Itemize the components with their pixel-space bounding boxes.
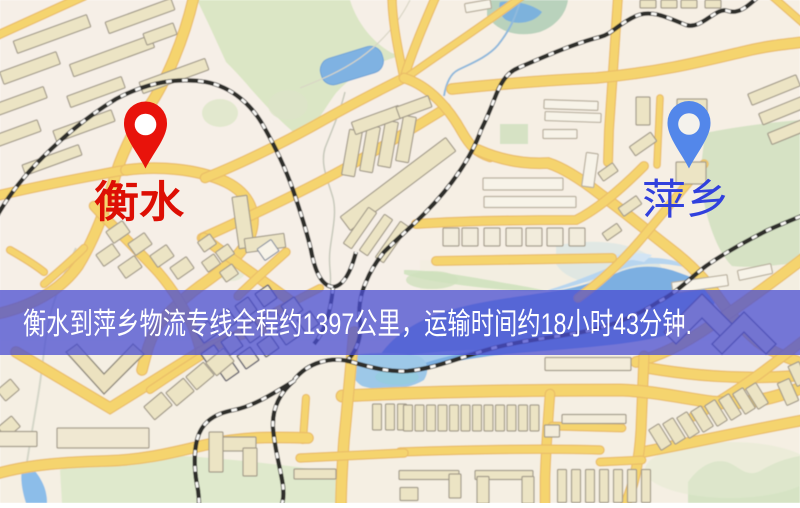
svg-text:衡水: 衡水: [94, 179, 185, 227]
svg-text:衡水到萍乡物流专线全程约1397公里，运输时间约18小时43: 衡水到萍乡物流专线全程约1397公里，运输时间约18小时43分钟.: [23, 308, 692, 341]
svg-text:萍乡: 萍乡: [642, 178, 730, 224]
